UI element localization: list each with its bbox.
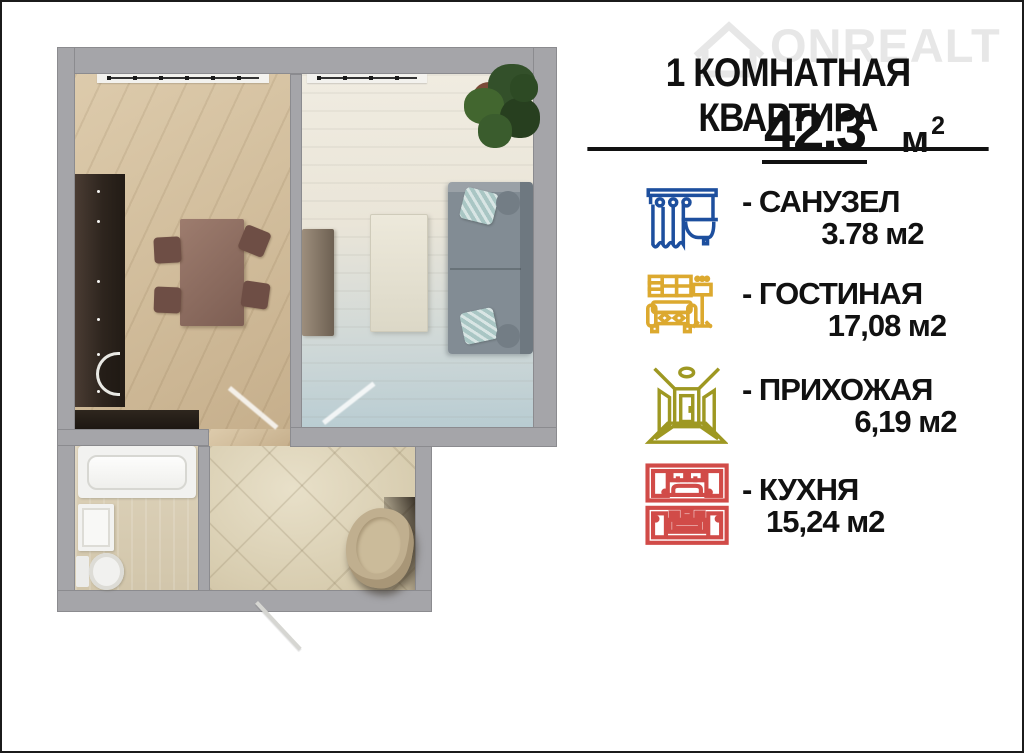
kitchen-window-sill (97, 74, 269, 83)
legend-row-kitchen: - КУХНЯ 15,24 м2 (642, 460, 860, 552)
bathroom-sink-basin (82, 508, 110, 547)
sofa-backrest (520, 182, 533, 354)
legend-text: - КУХНЯ 15,24 м2 (742, 474, 860, 537)
bathroom-sink (78, 504, 114, 551)
living-curtain-rod (317, 76, 417, 80)
legend-row-living: - ГОСТИНАЯ 17,08 м2 (642, 270, 922, 350)
legend-room-name: - КУХНЯ (742, 474, 860, 506)
legend-row-hallway: - ПРИХОЖАЯ 6,19 м2 (642, 360, 932, 452)
legend-room-area: 3.78 м2 (766, 218, 923, 250)
kitchen-doorway-floor (209, 429, 290, 446)
total-area-value: 42.3 (762, 102, 867, 164)
living-window-sill (307, 74, 427, 83)
dining-chair (154, 287, 182, 314)
legend-room-name: - ПРИХОЖАЯ (742, 374, 932, 406)
total-area-unit: м2 (901, 114, 945, 159)
sofa-seat-split (450, 268, 521, 270)
toilet-bowl (89, 553, 124, 590)
wall-kitchen-living-divider (290, 74, 302, 429)
plant-leaves (510, 74, 538, 102)
sofa-bolster (496, 191, 520, 215)
kitchen-icon (642, 460, 742, 552)
tv-stand (302, 229, 334, 336)
dining-table (180, 219, 244, 326)
total-area: 42.3 м2 (762, 102, 945, 164)
coffee-table (370, 214, 428, 332)
bathtub-icon (642, 178, 742, 258)
wall-left (57, 47, 75, 612)
kitchen-curtain-rod (107, 76, 259, 80)
legend-text: - ПРИХОЖАЯ 6,19 м2 (742, 374, 932, 437)
wall-hallway-right (415, 446, 432, 612)
legend-room-name: - ГОСТИНАЯ (742, 278, 922, 310)
wall-above-bathroom (57, 429, 209, 446)
legend-text: - САНУЗЕЛ 3.78 м2 (742, 186, 899, 249)
dining-chair (153, 236, 181, 263)
dining-chair (240, 280, 270, 310)
legend-room-area: 17,08 м2 (766, 310, 946, 342)
hallway-icon (642, 360, 742, 452)
toilet-tank (76, 556, 89, 587)
bathtub (78, 446, 196, 498)
counter-handles (97, 190, 100, 193)
hallway-pouf-seat (352, 513, 405, 577)
plant-leaves (478, 114, 512, 148)
wall-bathroom-hallway (198, 446, 210, 592)
legend-room-area: 6,19 м2 (766, 406, 956, 438)
sofa-bolster (496, 324, 520, 348)
legend-text: - ГОСТИНАЯ 17,08 м2 (742, 278, 922, 341)
legend-room-area: 15,24 м2 (766, 506, 884, 538)
kitchen-wardrobe (75, 410, 199, 429)
wall-below-living (290, 427, 557, 447)
floorplan-page: ONREALT 1 КОМНАТНАЯ КВАРТИРА 42.3 м2 - С… (0, 0, 1024, 753)
total-area-exponent: 2 (931, 112, 945, 140)
sofa-icon (642, 270, 742, 350)
legend-room-name: - САНУЗЕЛ (742, 186, 899, 218)
legend-row-bathroom: - САНУЗЕЛ 3.78 м2 (642, 178, 899, 258)
wall-top (57, 47, 557, 74)
bathtub-basin (87, 455, 187, 490)
wall-bottom (57, 590, 432, 612)
